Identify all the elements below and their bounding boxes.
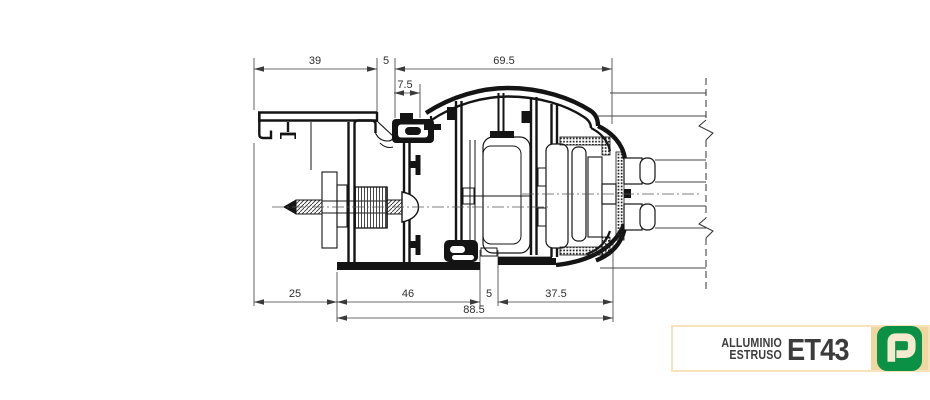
dim-top-7-5: 7.5	[397, 79, 412, 91]
sash-rib	[499, 93, 504, 131]
handle-rod-lower	[624, 204, 642, 230]
bottom-gasket	[444, 240, 478, 262]
brand-line2: ESTRUSO	[721, 349, 782, 361]
profile-code: ET43	[787, 329, 849, 368]
flange-hook-left	[259, 122, 271, 138]
dim-top-39: 39	[309, 55, 321, 67]
screw-barrel	[355, 187, 387, 228]
dim-bot-46: 46	[402, 288, 414, 300]
badge-text-zone: ALLUMINIO ESTRUSO ET43	[673, 327, 871, 370]
glazing-clamp	[462, 137, 531, 253]
break-line	[699, 78, 713, 291]
clamp-plates	[322, 172, 347, 248]
handle-mechanism	[538, 137, 655, 255]
brand-logo-p-icon	[877, 326, 922, 371]
toothed-bar-bottom	[560, 247, 606, 255]
handle-rod-upper	[624, 158, 642, 184]
toothed-bar-top	[560, 137, 606, 145]
screw-fastener	[283, 172, 419, 248]
dim-bot-88-5: 88.5	[463, 304, 484, 316]
dim-bot-37-5: 37.5	[545, 288, 566, 300]
dim-bot-25: 25	[289, 288, 301, 300]
sash-wall-left	[456, 101, 462, 262]
dim-bot-5: 5	[486, 288, 492, 300]
toothed-rack	[616, 152, 624, 240]
page: { "drawing": { "title_semantic": "alumin…	[0, 0, 930, 400]
brand-name: ALLUMINIO ESTRUSO	[721, 337, 782, 361]
frame-base-bar	[337, 262, 480, 270]
brand-badge: ALLUMINIO ESTRUSO ET43	[671, 325, 930, 372]
brand-logo	[871, 327, 928, 370]
handle-backplate	[546, 144, 568, 248]
dim-top-69-5: 69.5	[493, 55, 514, 67]
sash-wall-mid	[531, 97, 537, 255]
dim-top-5: 5	[383, 55, 389, 67]
